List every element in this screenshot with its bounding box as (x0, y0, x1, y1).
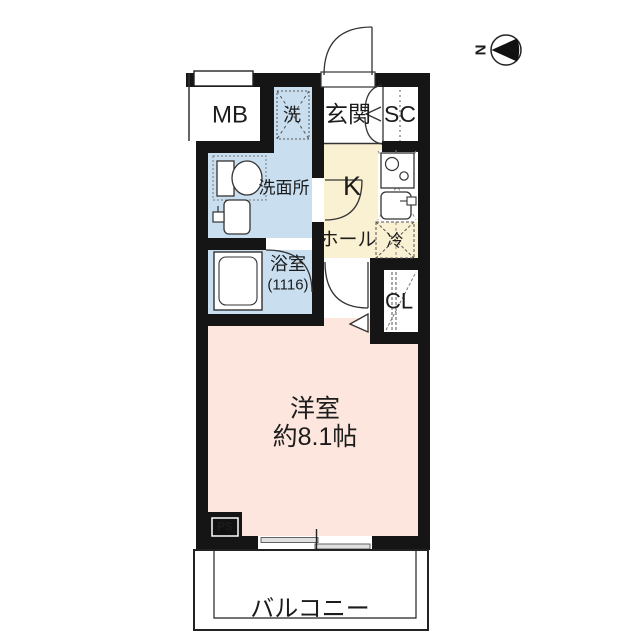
label-meter-box: MB (212, 102, 248, 129)
wall-bath-bottom (196, 314, 324, 326)
compass: N (473, 35, 522, 65)
wall-closet-bottom (370, 332, 430, 344)
pipe-space: PS (212, 518, 238, 536)
washbasin-faucet (213, 212, 224, 222)
label-laundry: 洗 (283, 105, 301, 125)
pipe-space-label: PS (217, 522, 233, 534)
label-shoe-closet: SC (384, 101, 416, 127)
washroom-hall-opening (312, 178, 324, 222)
wall-under-sc (382, 141, 418, 152)
label-bathroom-size: (1116) (267, 277, 308, 294)
wall-mb-laundry-divider (260, 73, 274, 147)
window-pane-left (261, 538, 318, 543)
wall-right (418, 73, 430, 550)
mb-vent-notch (194, 71, 253, 86)
label-washroom: 洗面所 (259, 179, 310, 198)
label-kitchen: K (343, 171, 361, 201)
label-bathroom: 浴室 (270, 254, 306, 274)
washroom-bath-opening (266, 238, 312, 250)
compass-north-label: N (473, 45, 490, 56)
toilet-bowl (232, 161, 262, 195)
label-balcony: バルコニー (250, 596, 370, 623)
stove-top (381, 153, 414, 188)
label-western-room-size: 約8.1帖 (273, 423, 358, 451)
hall-corridor-floor (324, 258, 370, 318)
label-hall: ホール (319, 230, 376, 251)
floorplan-drawing: PS N MB 洗 玄関 SC 洗面所 K ホール 冷 浴室 (1116) CL… (0, 0, 640, 639)
bathtub-outer (214, 252, 262, 310)
wall-closet-left (370, 258, 384, 344)
kitchen-faucet (407, 197, 416, 205)
window-pane-right (315, 544, 370, 549)
wall-left (196, 141, 208, 550)
entrance-door-arc (324, 27, 372, 75)
entrance-door-opening (321, 72, 375, 87)
floorplan-page: PS N MB 洗 玄関 SC 洗面所 K ホール 冷 浴室 (1116) CL… (0, 0, 640, 639)
washbasin (224, 200, 250, 234)
label-western-room: 洋室 (290, 395, 340, 423)
label-fridge: 冷 (387, 232, 404, 251)
label-entrance: 玄関 (325, 101, 371, 127)
label-closet: CL (385, 289, 413, 314)
